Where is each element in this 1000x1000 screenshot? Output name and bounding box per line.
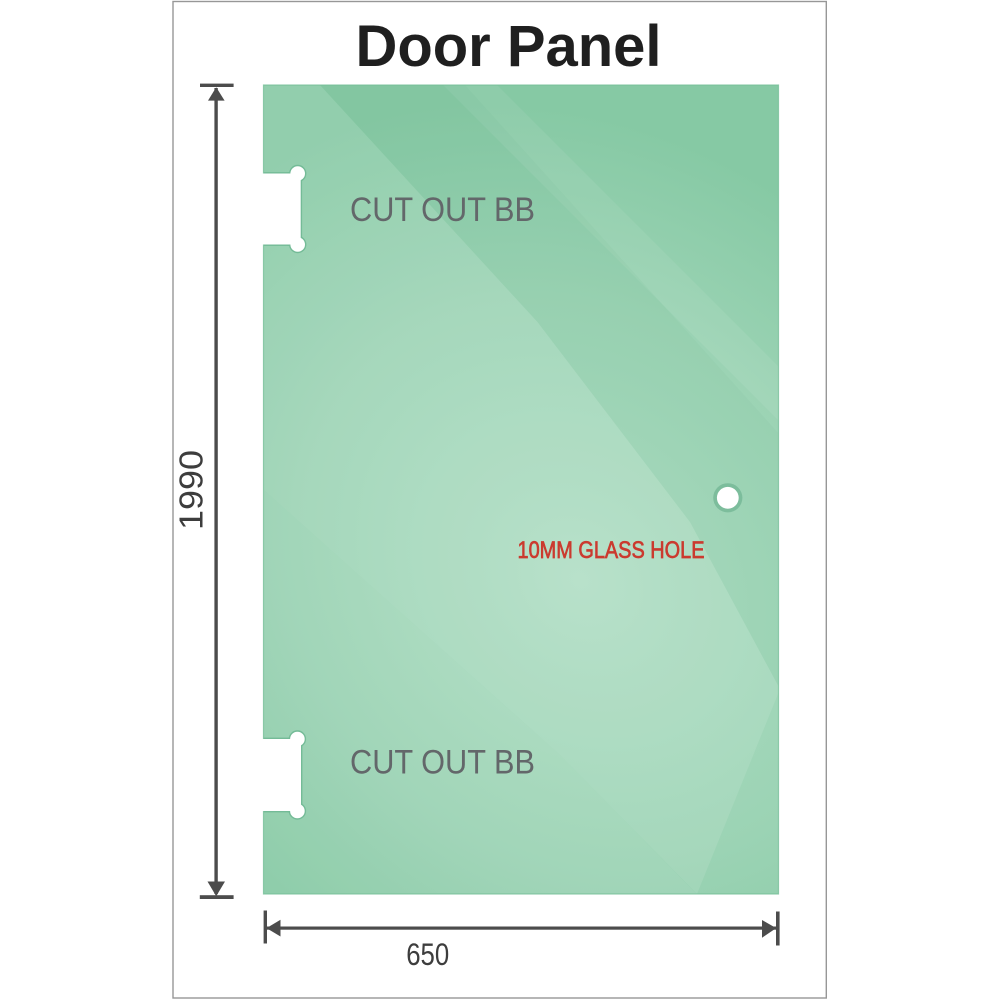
- svg-text:10MM GLASS HOLE: 10MM GLASS HOLE: [518, 537, 705, 564]
- svg-text:1990: 1990: [173, 450, 210, 530]
- svg-text:Door Panel: Door Panel: [356, 14, 662, 79]
- svg-text:CUT OUT BB: CUT OUT BB: [350, 191, 535, 229]
- svg-text:CUT OUT BB: CUT OUT BB: [350, 744, 535, 782]
- svg-text:650: 650: [406, 936, 449, 972]
